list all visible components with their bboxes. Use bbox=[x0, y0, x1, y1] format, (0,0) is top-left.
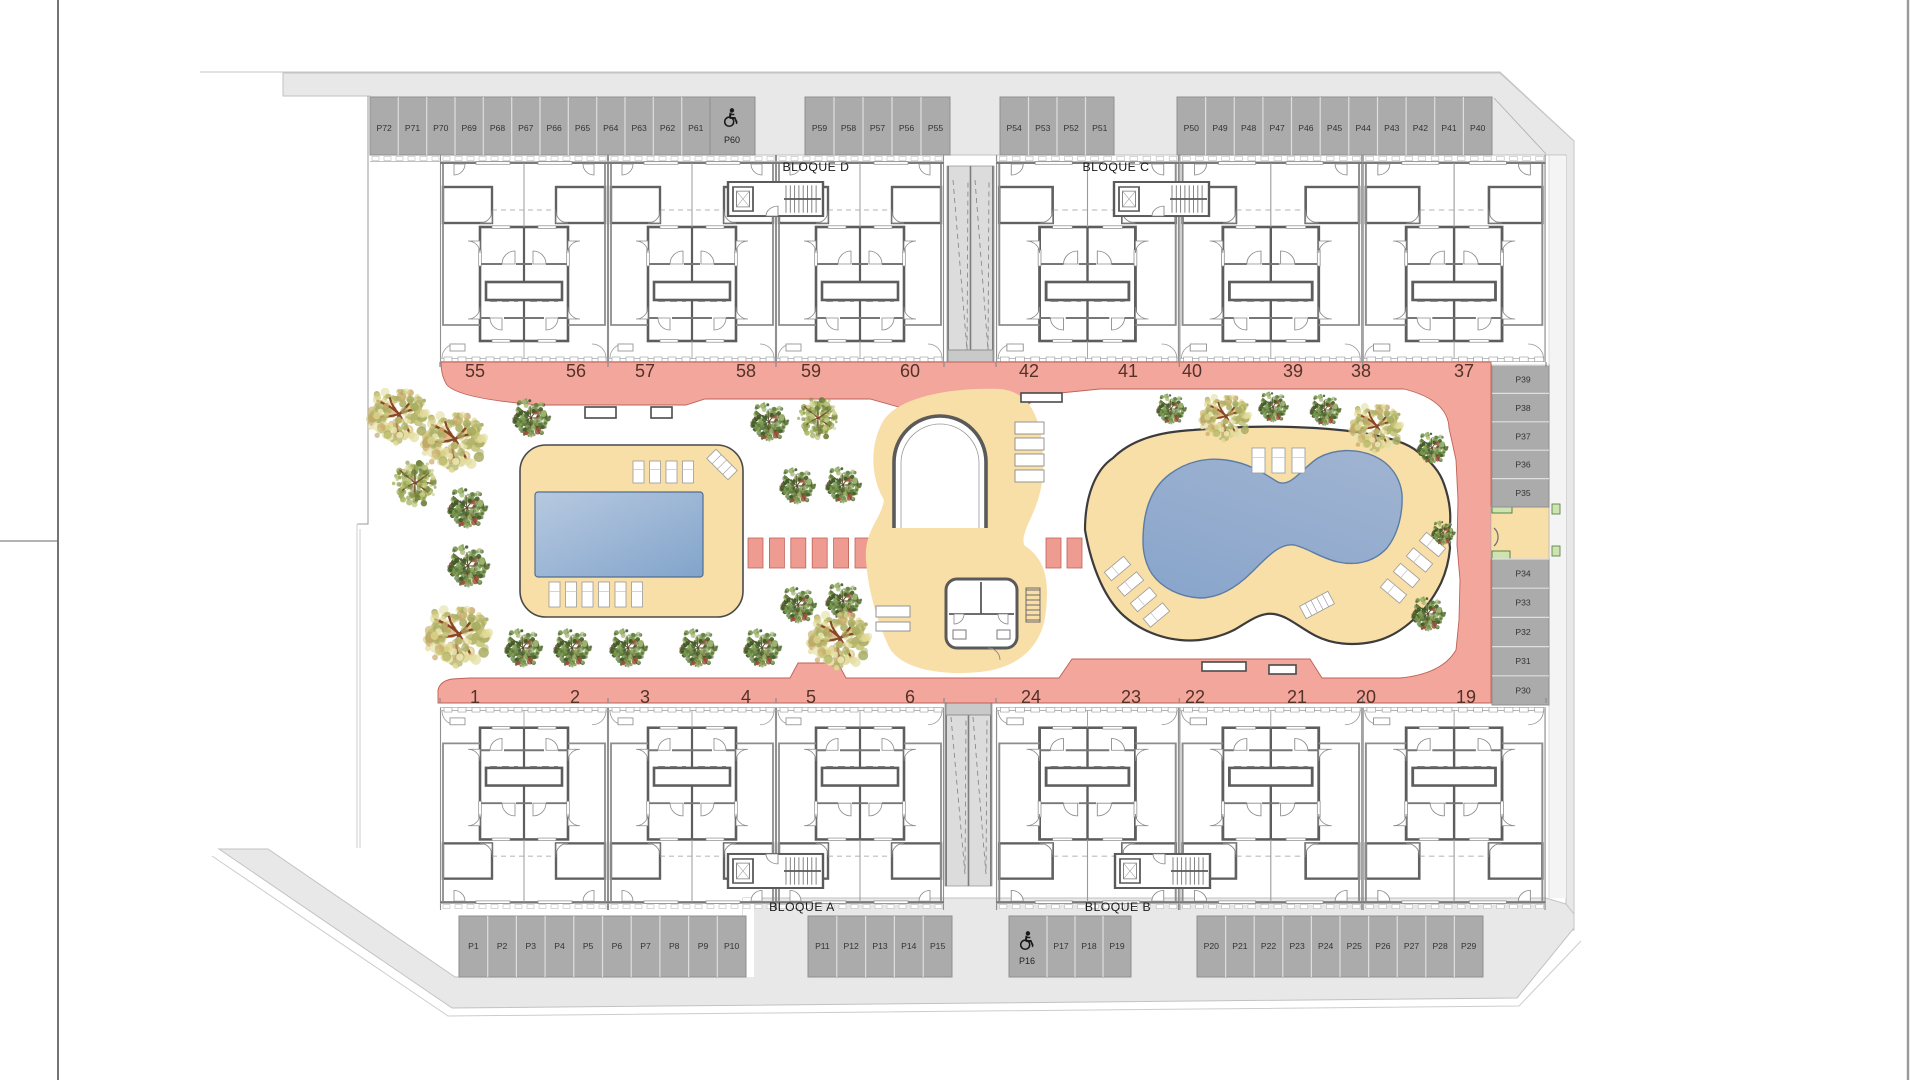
svg-text:P72: P72 bbox=[377, 123, 393, 133]
svg-text:38: 38 bbox=[1351, 361, 1371, 381]
svg-text:P26: P26 bbox=[1375, 941, 1391, 951]
svg-text:P11: P11 bbox=[815, 941, 830, 951]
svg-text:P54: P54 bbox=[1007, 123, 1023, 133]
svg-text:P59: P59 bbox=[812, 123, 828, 133]
svg-text:21: 21 bbox=[1287, 687, 1307, 707]
svg-text:5: 5 bbox=[806, 687, 816, 707]
svg-text:BLOQUE B: BLOQUE B bbox=[1085, 900, 1151, 914]
svg-text:60: 60 bbox=[900, 361, 920, 381]
svg-text:P71: P71 bbox=[405, 123, 421, 133]
svg-text:P44: P44 bbox=[1355, 123, 1371, 133]
svg-text:P22: P22 bbox=[1261, 941, 1277, 951]
svg-text:58: 58 bbox=[736, 361, 756, 381]
svg-text:P57: P57 bbox=[870, 123, 886, 133]
svg-text:P14: P14 bbox=[901, 941, 917, 951]
svg-text:P12: P12 bbox=[844, 941, 860, 951]
svg-text:P43: P43 bbox=[1384, 123, 1400, 133]
svg-text:P16: P16 bbox=[1019, 956, 1035, 966]
svg-text:P58: P58 bbox=[841, 123, 857, 133]
svg-text:P13: P13 bbox=[872, 941, 888, 951]
svg-text:P17: P17 bbox=[1053, 941, 1069, 951]
svg-text:P29: P29 bbox=[1461, 941, 1477, 951]
svg-text:20: 20 bbox=[1356, 687, 1376, 707]
svg-text:P34: P34 bbox=[1515, 569, 1531, 579]
svg-text:P6: P6 bbox=[612, 941, 623, 951]
svg-text:P37: P37 bbox=[1515, 431, 1531, 441]
svg-text:P27: P27 bbox=[1404, 941, 1420, 951]
svg-text:P40: P40 bbox=[1470, 123, 1486, 133]
svg-text:P51: P51 bbox=[1092, 123, 1108, 133]
svg-text:P65: P65 bbox=[575, 123, 591, 133]
svg-text:P18: P18 bbox=[1081, 941, 1097, 951]
svg-text:P23: P23 bbox=[1289, 941, 1305, 951]
svg-text:P1: P1 bbox=[468, 941, 479, 951]
svg-text:P32: P32 bbox=[1515, 627, 1531, 637]
svg-text:P31: P31 bbox=[1515, 656, 1531, 666]
svg-text:P41: P41 bbox=[1441, 123, 1457, 133]
svg-text:P15: P15 bbox=[930, 941, 946, 951]
svg-text:P60: P60 bbox=[724, 135, 740, 145]
svg-text:P33: P33 bbox=[1515, 598, 1531, 608]
svg-text:P49: P49 bbox=[1212, 123, 1228, 133]
svg-text:BLOQUE C: BLOQUE C bbox=[1083, 160, 1150, 174]
svg-text:P47: P47 bbox=[1270, 123, 1286, 133]
svg-text:P52: P52 bbox=[1064, 123, 1080, 133]
svg-text:39: 39 bbox=[1283, 361, 1303, 381]
svg-text:P63: P63 bbox=[632, 123, 648, 133]
svg-text:22: 22 bbox=[1185, 687, 1205, 707]
svg-text:55: 55 bbox=[465, 361, 485, 381]
svg-text:P48: P48 bbox=[1241, 123, 1257, 133]
svg-text:P67: P67 bbox=[518, 123, 534, 133]
svg-text:P70: P70 bbox=[433, 123, 449, 133]
svg-text:40: 40 bbox=[1182, 361, 1202, 381]
svg-text:P46: P46 bbox=[1298, 123, 1314, 133]
svg-text:19: 19 bbox=[1456, 687, 1476, 707]
svg-text:P39: P39 bbox=[1515, 375, 1531, 385]
svg-text:P9: P9 bbox=[698, 941, 709, 951]
svg-text:P21: P21 bbox=[1232, 941, 1248, 951]
svg-text:P56: P56 bbox=[899, 123, 915, 133]
svg-text:56: 56 bbox=[566, 361, 586, 381]
svg-text:P24: P24 bbox=[1318, 941, 1334, 951]
svg-text:P62: P62 bbox=[660, 123, 676, 133]
svg-text:P25: P25 bbox=[1347, 941, 1363, 951]
svg-text:42: 42 bbox=[1019, 361, 1039, 381]
svg-text:P5: P5 bbox=[583, 941, 594, 951]
svg-text:P3: P3 bbox=[526, 941, 537, 951]
svg-text:P68: P68 bbox=[490, 123, 506, 133]
svg-text:P2: P2 bbox=[497, 941, 508, 951]
svg-text:24: 24 bbox=[1021, 687, 1041, 707]
svg-text:P64: P64 bbox=[603, 123, 619, 133]
svg-text:6: 6 bbox=[905, 687, 915, 707]
svg-text:P50: P50 bbox=[1184, 123, 1200, 133]
svg-text:P35: P35 bbox=[1515, 488, 1531, 498]
svg-text:P10: P10 bbox=[724, 941, 740, 951]
svg-text:BLOQUE A: BLOQUE A bbox=[769, 900, 835, 914]
svg-text:P36: P36 bbox=[1515, 460, 1531, 470]
svg-text:P38: P38 bbox=[1515, 403, 1531, 413]
svg-text:59: 59 bbox=[801, 361, 821, 381]
svg-text:P20: P20 bbox=[1204, 941, 1220, 951]
svg-text:P69: P69 bbox=[462, 123, 478, 133]
svg-text:1: 1 bbox=[470, 687, 480, 707]
svg-text:4: 4 bbox=[741, 687, 751, 707]
svg-text:P4: P4 bbox=[554, 941, 565, 951]
svg-text:P30: P30 bbox=[1515, 685, 1531, 695]
svg-text:P45: P45 bbox=[1327, 123, 1343, 133]
svg-text:P55: P55 bbox=[928, 123, 944, 133]
svg-text:BLOQUE D: BLOQUE D bbox=[783, 160, 850, 174]
svg-text:37: 37 bbox=[1454, 361, 1474, 381]
svg-text:P53: P53 bbox=[1035, 123, 1051, 133]
svg-text:P19: P19 bbox=[1109, 941, 1125, 951]
svg-text:P61: P61 bbox=[688, 123, 704, 133]
svg-text:3: 3 bbox=[640, 687, 650, 707]
svg-text:P28: P28 bbox=[1432, 941, 1448, 951]
svg-text:P66: P66 bbox=[547, 123, 563, 133]
svg-text:P42: P42 bbox=[1413, 123, 1429, 133]
svg-text:P7: P7 bbox=[640, 941, 651, 951]
svg-text:41: 41 bbox=[1118, 361, 1138, 381]
svg-text:2: 2 bbox=[570, 687, 580, 707]
svg-text:57: 57 bbox=[635, 361, 655, 381]
svg-text:23: 23 bbox=[1121, 687, 1141, 707]
svg-text:P8: P8 bbox=[669, 941, 680, 951]
